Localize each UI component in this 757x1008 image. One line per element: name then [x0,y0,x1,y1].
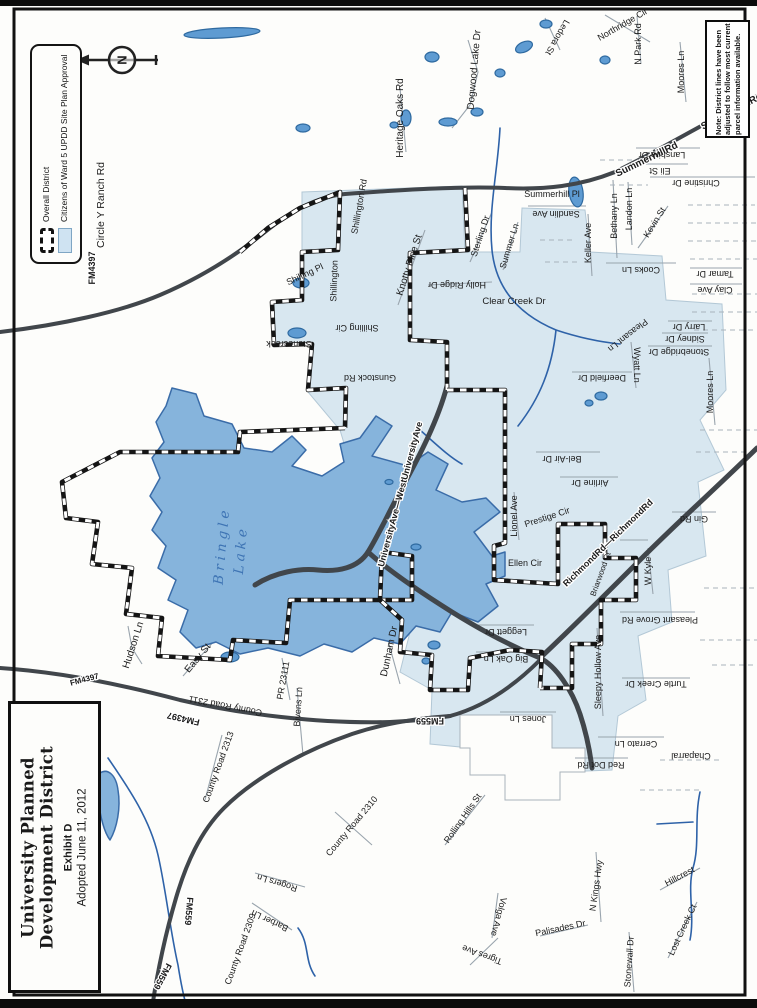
pond [540,20,552,28]
pond [296,124,310,132]
note-box-content: Note: District lines have been adjusted … [708,23,748,135]
street-label: Keller Ave [583,223,593,263]
street-label: Eli St [649,166,671,176]
pond [428,641,440,649]
street-label: FM559 [416,716,444,726]
pond [422,658,430,664]
street-label: Wyatt Ln [632,347,642,382]
blue-fill-swatch [58,228,72,253]
street-label: N Park Rd [633,23,643,65]
street-label: Ellen Cir [508,558,542,568]
street-label: Jones Ln [510,714,547,724]
street-label: Summerhill Pl [524,189,580,199]
street-label: Lanshire Dr [639,150,686,160]
street-label: Larry Dr [673,322,706,332]
street-label: Heritage Oaks Rd [395,78,406,157]
adopted-date: Adopted June 11, 2012 [77,788,89,906]
street-label: Sleepy Hollow Ave [593,635,603,709]
title-box-content: University Planned Development District … [11,706,98,990]
street-label: Tamar Dr [696,269,733,279]
street-label: Clear Creek Dr [482,296,545,307]
street-label: Stonecreek [266,339,312,349]
street-label: Moores Ln [705,371,715,414]
pond [595,392,607,400]
legend-item-overall-district: Overall District [40,167,54,253]
street-label: Clay Ave [697,285,732,295]
map-canvas: Circle Y Ranch RdFM4397Heritage Oaks RdD… [0,0,757,1008]
street-label: Pleasant Grove Rd [622,615,698,625]
street-label: Holly Ridge Dr [428,280,486,290]
pond [495,69,505,77]
pond [411,544,421,550]
street-label: Chaparral [671,751,711,761]
street-label: Turtle Creek Dr [625,679,686,689]
pond [600,56,610,64]
pond [439,118,457,126]
scanned-map-page: { "document": { "title_box": { "line1": … [0,0,757,1008]
street-label: Bethany Ln [609,193,619,239]
north-letter: N [115,55,130,64]
street-label: Circle Y Ranch Rd [95,162,107,248]
street-label: W Kyle [643,557,653,586]
note-text: Note: District lines have been adjusted … [714,23,742,135]
street-label: Shilling Cir [335,323,378,333]
exhibit-label: Exhibit D [63,824,75,872]
map-title-line2: Development District [38,746,57,949]
legend-label: Overall District [42,167,51,222]
street-label: Moores Ln [676,51,686,94]
pond [425,52,439,62]
street-label: Lionel Ave [509,495,519,536]
pond [585,400,593,406]
street-label: Sandlin Ave [532,209,579,219]
street-label: Shillington [328,260,339,302]
street-label: Cooks Ln [622,265,660,275]
dashed-boundary-swatch [40,228,54,253]
street-label: Cerrato Ln [615,739,658,749]
pond [385,480,393,485]
legend-item-ward5: Citizens of Ward 5 UPDD Site Plan Approv… [58,55,72,253]
street-label: Sidney Dr [665,334,705,344]
pond [288,328,306,338]
map-title-line1: University Planned [19,746,38,949]
legend-label: Citizens of Ward 5 UPDD Site Plan Approv… [60,55,69,222]
street-label: Red Dot Rd [577,760,624,770]
street-label: Big Oak Ln [484,654,529,664]
street-label: FM4397 [87,251,97,284]
street-label: Leggett Dr [485,627,527,637]
street-label: Landon Ln [624,188,634,231]
street-label: Airline Dr [571,478,608,488]
legend-content: Overall District Citizens of Ward 5 UPDD… [33,47,79,261]
street-label: Bel-Air Dr [542,454,581,464]
street-label: Gunstock Rd [344,373,396,383]
street-label: Deerfield Dr [578,373,626,383]
street-label: Gin Rd [680,514,708,524]
street-label: Christine Dr [672,178,720,188]
street-label: Stonebridge Dr [649,347,710,357]
